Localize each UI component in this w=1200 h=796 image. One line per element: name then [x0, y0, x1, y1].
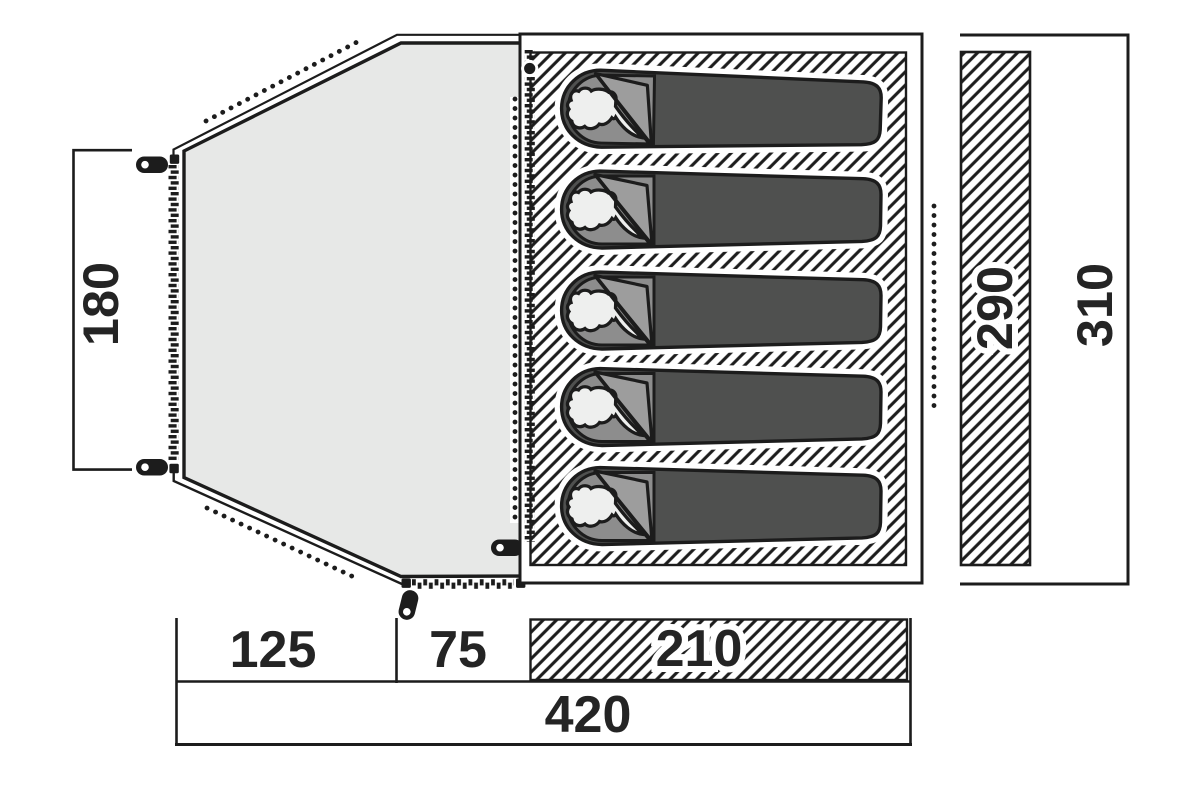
svg-text:125: 125 [230, 621, 317, 679]
svg-text:210: 210 [656, 620, 743, 678]
svg-text:290: 290 [966, 266, 1023, 350]
svg-text:75: 75 [429, 621, 487, 679]
svg-text:420: 420 [545, 686, 632, 744]
svg-text:180: 180 [72, 262, 129, 346]
svg-text:310: 310 [1066, 263, 1123, 347]
